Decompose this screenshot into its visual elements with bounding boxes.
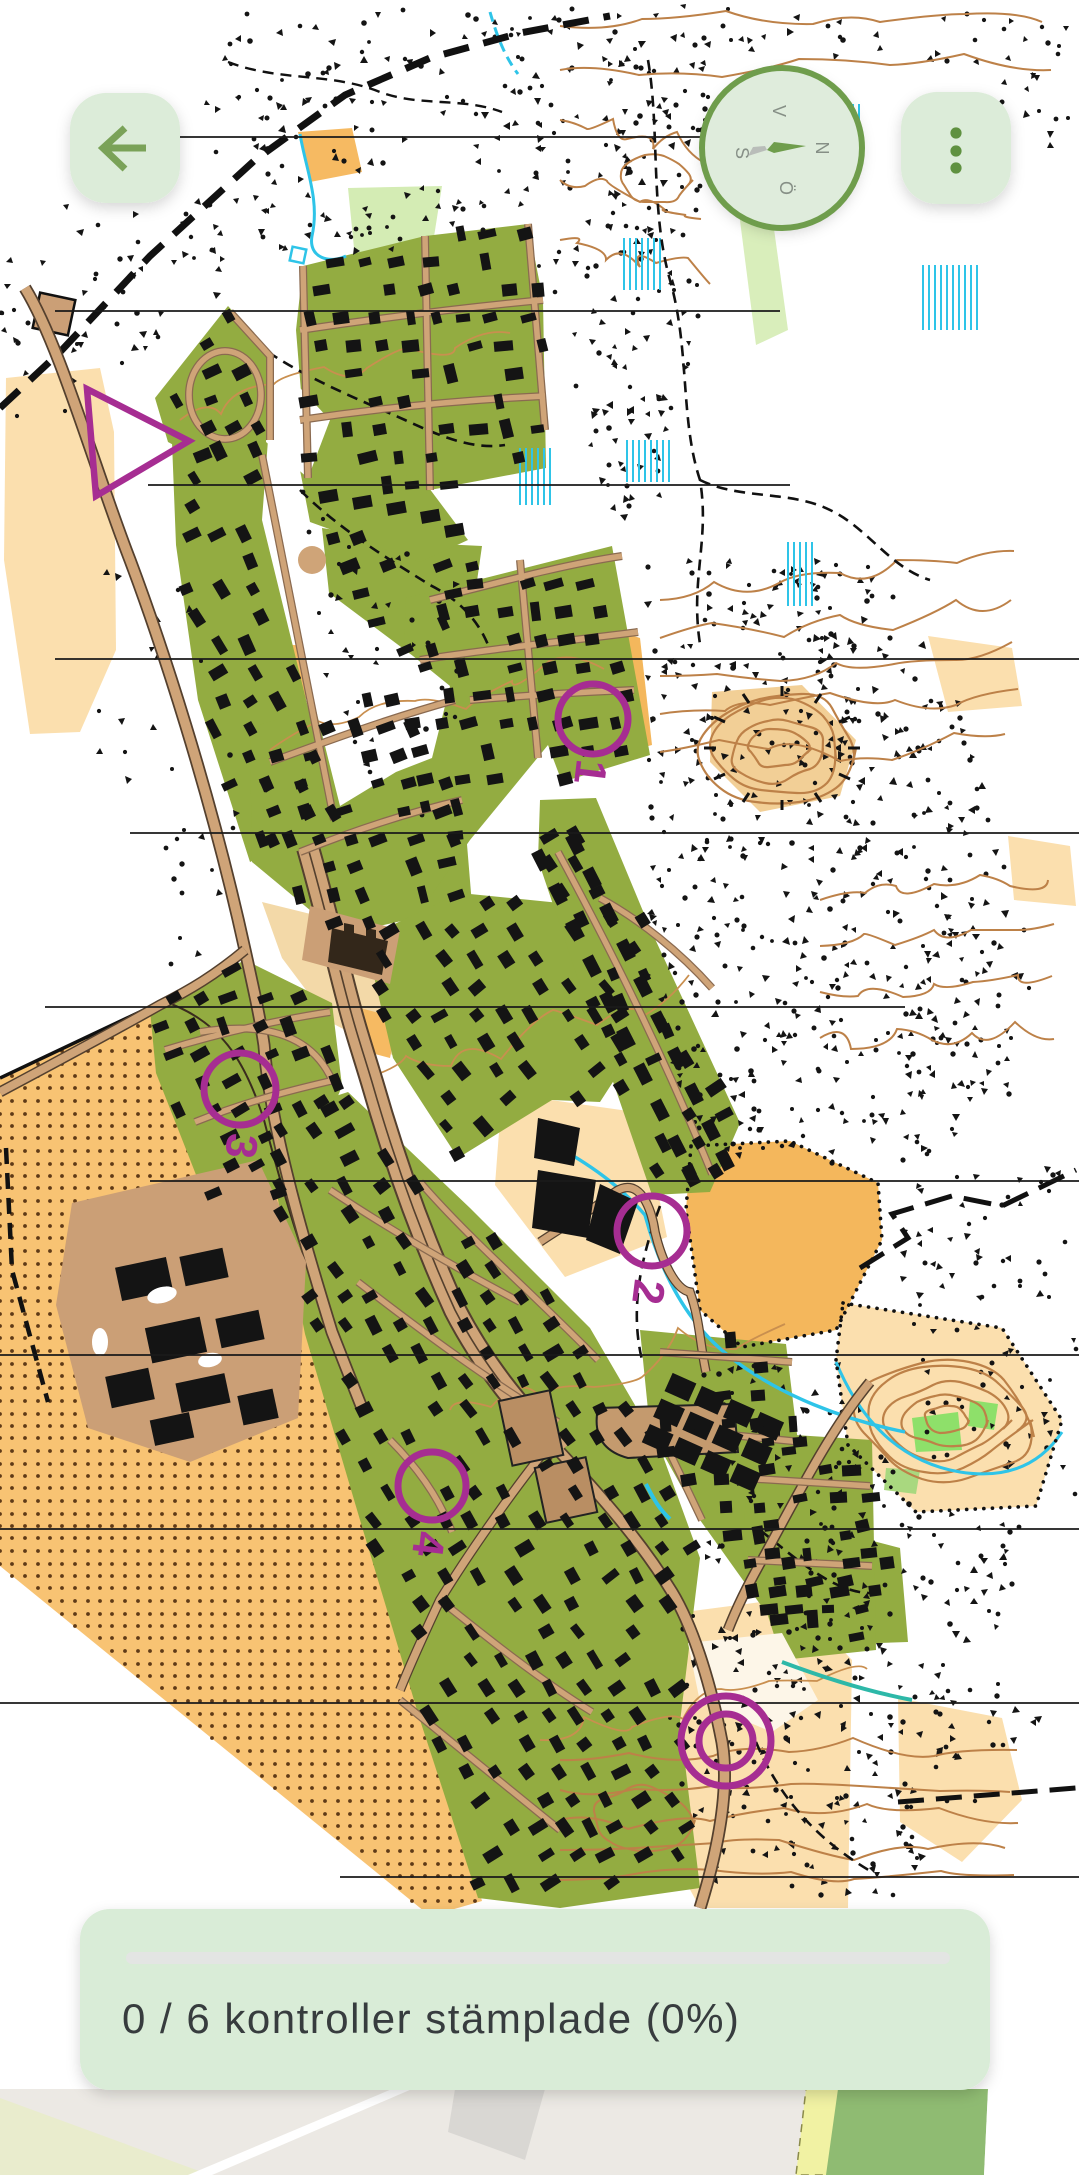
svg-text:V: V <box>769 105 789 117</box>
svg-text:Ö: Ö <box>776 181 796 195</box>
svg-text:N: N <box>812 142 832 155</box>
svg-text:0 / 6 kontroller stämplade (0%: 0 / 6 kontroller stämplade (0%) <box>122 1995 740 2042</box>
svg-text:S: S <box>732 147 752 159</box>
